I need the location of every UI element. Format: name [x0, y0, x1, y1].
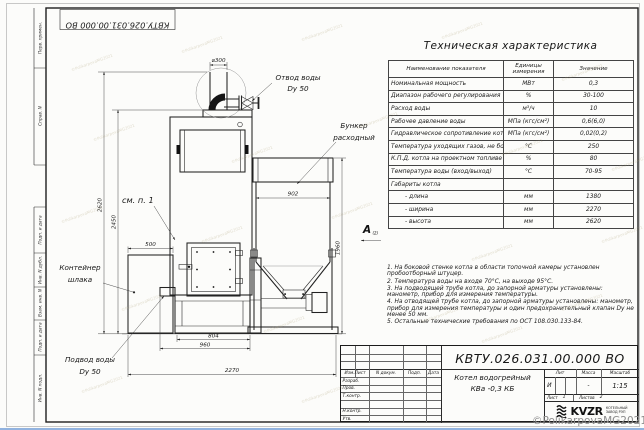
view-a-ref: (2) — [373, 231, 379, 236]
callout-see-item-1: см. п. 1 — [122, 195, 154, 205]
note-item: 2. Температура воды на входе 70°С, на вы… — [387, 279, 637, 285]
spec-row: Гидравлическое сопротивление котлаМПа (к… — [389, 128, 634, 141]
product-name-line1: Котел водогрейный — [441, 373, 544, 384]
spec-header-value: Значение — [554, 61, 634, 78]
door-hinge — [236, 251, 243, 256]
spec-units: МВт — [504, 78, 554, 91]
spec-value: 0,02(0,2) — [554, 128, 634, 141]
spec-row: Температура воды (вход/выход)°С70-95 — [389, 166, 634, 179]
callout-slag-container: Контейнер — [59, 263, 101, 272]
boiler-body — [160, 110, 261, 333]
door-hinge — [236, 279, 243, 284]
boiler-top-panel — [180, 130, 245, 172]
spec-row: - длинамм1380 — [389, 191, 634, 204]
spec-name: Температура уходящих газов, не более — [389, 140, 504, 153]
spec-name: - ширина — [389, 203, 504, 216]
dim-total-height: 2620 — [98, 197, 104, 212]
tb-col-izm: Изм.Лист — [341, 370, 369, 377]
margin-label: Справ. N — [38, 105, 44, 125]
title-block: КВТУ.026.031.00.000 ВО Изм.Лист N докум.… — [340, 345, 638, 422]
spec-name: Расход воды — [389, 103, 504, 116]
tb-sheets-label: Листов — [579, 395, 595, 400]
margin-label: Инв. N подл. — [38, 374, 44, 402]
top-stamp: КВТУ.026.031.00.000 ВО — [60, 10, 175, 31]
spec-name: Температура воды (вход/выход) — [389, 166, 504, 179]
callout-bunker: Бункер — [340, 121, 368, 130]
callout-water-outlet: Отвод воды — [275, 73, 320, 82]
spec-table-title: Техническая характеристика — [388, 40, 633, 52]
spec-name: Габариты котла — [389, 178, 504, 191]
spec-value: 30-100 — [554, 90, 634, 103]
title-block-doc-number: КВТУ.026.031.00.000 ВО — [441, 349, 639, 369]
spec-header-units: Единицы измерения — [504, 61, 554, 78]
spec-value: 70-95 — [554, 166, 634, 179]
tb-sheets-value: 2 — [600, 395, 603, 400]
drawing-sheet: Перв. примен. Справ. N Подп. и дата Инв.… — [0, 0, 644, 430]
tb-mass-label: Масса — [576, 370, 601, 377]
spec-value: 1380 — [554, 191, 634, 204]
spec-table: Наименование показателя Единицы измерени… — [388, 60, 634, 229]
spec-units: м³/ч — [504, 103, 554, 116]
tb-mass-value: - — [576, 382, 601, 389]
callouts: Отвод воды Dy 50 Бункер расходный Контей… — [59, 73, 381, 376]
spec-name: Диапазон рабочего регулирования — [389, 90, 504, 103]
spec-value: 0,3 — [554, 78, 634, 91]
spec-value: 2270 — [554, 203, 634, 216]
note-item: 5. Остальные технические требования по О… — [387, 319, 637, 325]
tb-lit-label: Лит — [544, 370, 576, 377]
tb-sheet: Лист 1 — [547, 394, 573, 401]
feeder-motor — [312, 293, 327, 313]
tb-role-utv: Утв. — [343, 416, 369, 423]
dim-chimney-diameter: ⌀300 — [211, 58, 225, 64]
slag-container — [128, 255, 173, 333]
logo-subtext: КОТЕЛЬНЫЙ ЗАВОД РЭП — [606, 407, 628, 414]
dim-boiler-height: 2450 — [112, 214, 118, 229]
margin-label: Подп. и дата — [38, 322, 44, 352]
tb-lit-value: И — [544, 382, 555, 389]
spec-units: % — [504, 153, 554, 166]
dimensions: ⌀300 2620 2450 500 902 1960 804 — [98, 58, 347, 377]
view-a-letter: А — [362, 224, 371, 236]
note-item: 4. На отводящей трубе котла, до запорной… — [387, 299, 637, 318]
product-name: Котел водогрейный КВа -0,3 КБ — [441, 373, 544, 394]
screw-feeder — [261, 266, 327, 313]
spec-name: Гидравлическое сопротивление котла — [389, 128, 504, 141]
margin-column: Перв. примен. Справ. N Подп. и дата Инв.… — [38, 22, 44, 402]
spec-value: 2620 — [554, 216, 634, 229]
tb-sheet-value: 1 — [563, 395, 566, 400]
spec-header-name: Наименование показателя — [389, 61, 504, 78]
spec-units: МПа (кгс/см²) — [504, 115, 554, 128]
product-name-line2: КВа -0,3 КБ — [441, 384, 544, 395]
spec-units: мм — [504, 191, 554, 204]
margin-label: Подп. и дата — [38, 215, 44, 245]
callout-bunker2: расходный — [332, 133, 375, 142]
spec-name: - высота — [389, 216, 504, 229]
tb-role-tkontr: Т.контр. — [343, 393, 369, 400]
watermark-copyright: ©PolikarpovaMG2021 — [532, 415, 644, 427]
tb-col-podp: Подп. — [403, 370, 426, 377]
spec-row: Диапазон рабочего регулирования%30-100 — [389, 90, 634, 103]
spec-name: К.П.Д. котла на проектном топливе — [389, 153, 504, 166]
spec-row: К.П.Д. котла на проектном топливе%80 — [389, 153, 634, 166]
callout-water-outlet-dn: Dy 50 — [287, 84, 309, 93]
spec-row: Температура уходящих газов, не более°С25… — [389, 140, 634, 153]
spec-row: Габариты котла — [389, 178, 634, 191]
outlet-elbow — [212, 97, 225, 110]
callout-water-inlet: Подвод воды — [65, 355, 115, 364]
callout-slag-container2: шлака — [68, 275, 92, 284]
margin-label: Перв. примен. — [38, 22, 44, 54]
spec-row: - высотамм2620 — [389, 216, 634, 229]
spec-value: 0,6(6,0) — [554, 115, 634, 128]
spec-units: °С — [504, 166, 554, 179]
dim-total-width: 2270 — [225, 368, 240, 374]
note-item: 1. На боковой стенке котла в области топ… — [387, 265, 637, 278]
callout-water-inlet-dn: Dy 50 — [79, 367, 101, 376]
spec-row: Расход водым³/ч10 — [389, 103, 634, 116]
spec-value — [554, 178, 634, 191]
spec-row: - ширинамм2270 — [389, 203, 634, 216]
stamp-doc-number: КВТУ.026.031.00.000 ВО — [65, 21, 169, 31]
tb-scale-label: Масштаб — [601, 370, 639, 377]
tb-col-dokum: N докум. — [369, 370, 403, 377]
spec-units: МПа (кгс/см²) — [504, 128, 554, 141]
tb-col-data: Дата — [426, 370, 441, 377]
technical-notes: 1. На боковой стенке котла в области топ… — [387, 265, 637, 327]
dim-base-width: 804 — [208, 334, 219, 340]
margin-label: Инв. N дубл. — [38, 256, 44, 284]
tb-sheet-label: Лист — [547, 395, 558, 400]
tb-sheets: Листов 2 — [579, 394, 637, 401]
dim-container-width: 500 — [145, 242, 156, 248]
spec-units: % — [504, 90, 554, 103]
margin-label: Взам. инв. N — [38, 288, 44, 317]
spec-units: мм — [504, 203, 554, 216]
spec-row: Номинальная мощностьМВт0,3 — [389, 78, 634, 91]
dim-bunker-width: 902 — [288, 192, 299, 198]
dim-boiler-width: 960 — [200, 343, 211, 349]
spec-units: мм — [504, 216, 554, 229]
tb-role-prov: Пров. — [343, 385, 369, 392]
tb-role-razrab: Разраб. — [343, 378, 369, 385]
spec-units: °С — [504, 140, 554, 153]
spec-units — [504, 178, 554, 191]
spec-header-row: Наименование показателя Единицы измерени… — [389, 61, 634, 78]
note-item: 3. На подводящей трубе котла, до запорно… — [387, 286, 637, 299]
spec-value: 10 — [554, 103, 634, 116]
spec-name: Рабочее давление воды — [389, 115, 504, 128]
spec-value: 250 — [554, 140, 634, 153]
spec-name: Номинальная мощность — [389, 78, 504, 91]
spec-value: 80 — [554, 153, 634, 166]
spec-name: - длина — [389, 191, 504, 204]
dim-bunker-height: 1960 — [336, 240, 342, 255]
furnace-door — [179, 243, 243, 296]
tb-scale-value: 1:15 — [601, 382, 639, 390]
spec-row: Рабочее давление водыМПа (кгс/см²)0,6(6,… — [389, 115, 634, 128]
tb-role-nkontr: Н.контр. — [343, 408, 369, 415]
